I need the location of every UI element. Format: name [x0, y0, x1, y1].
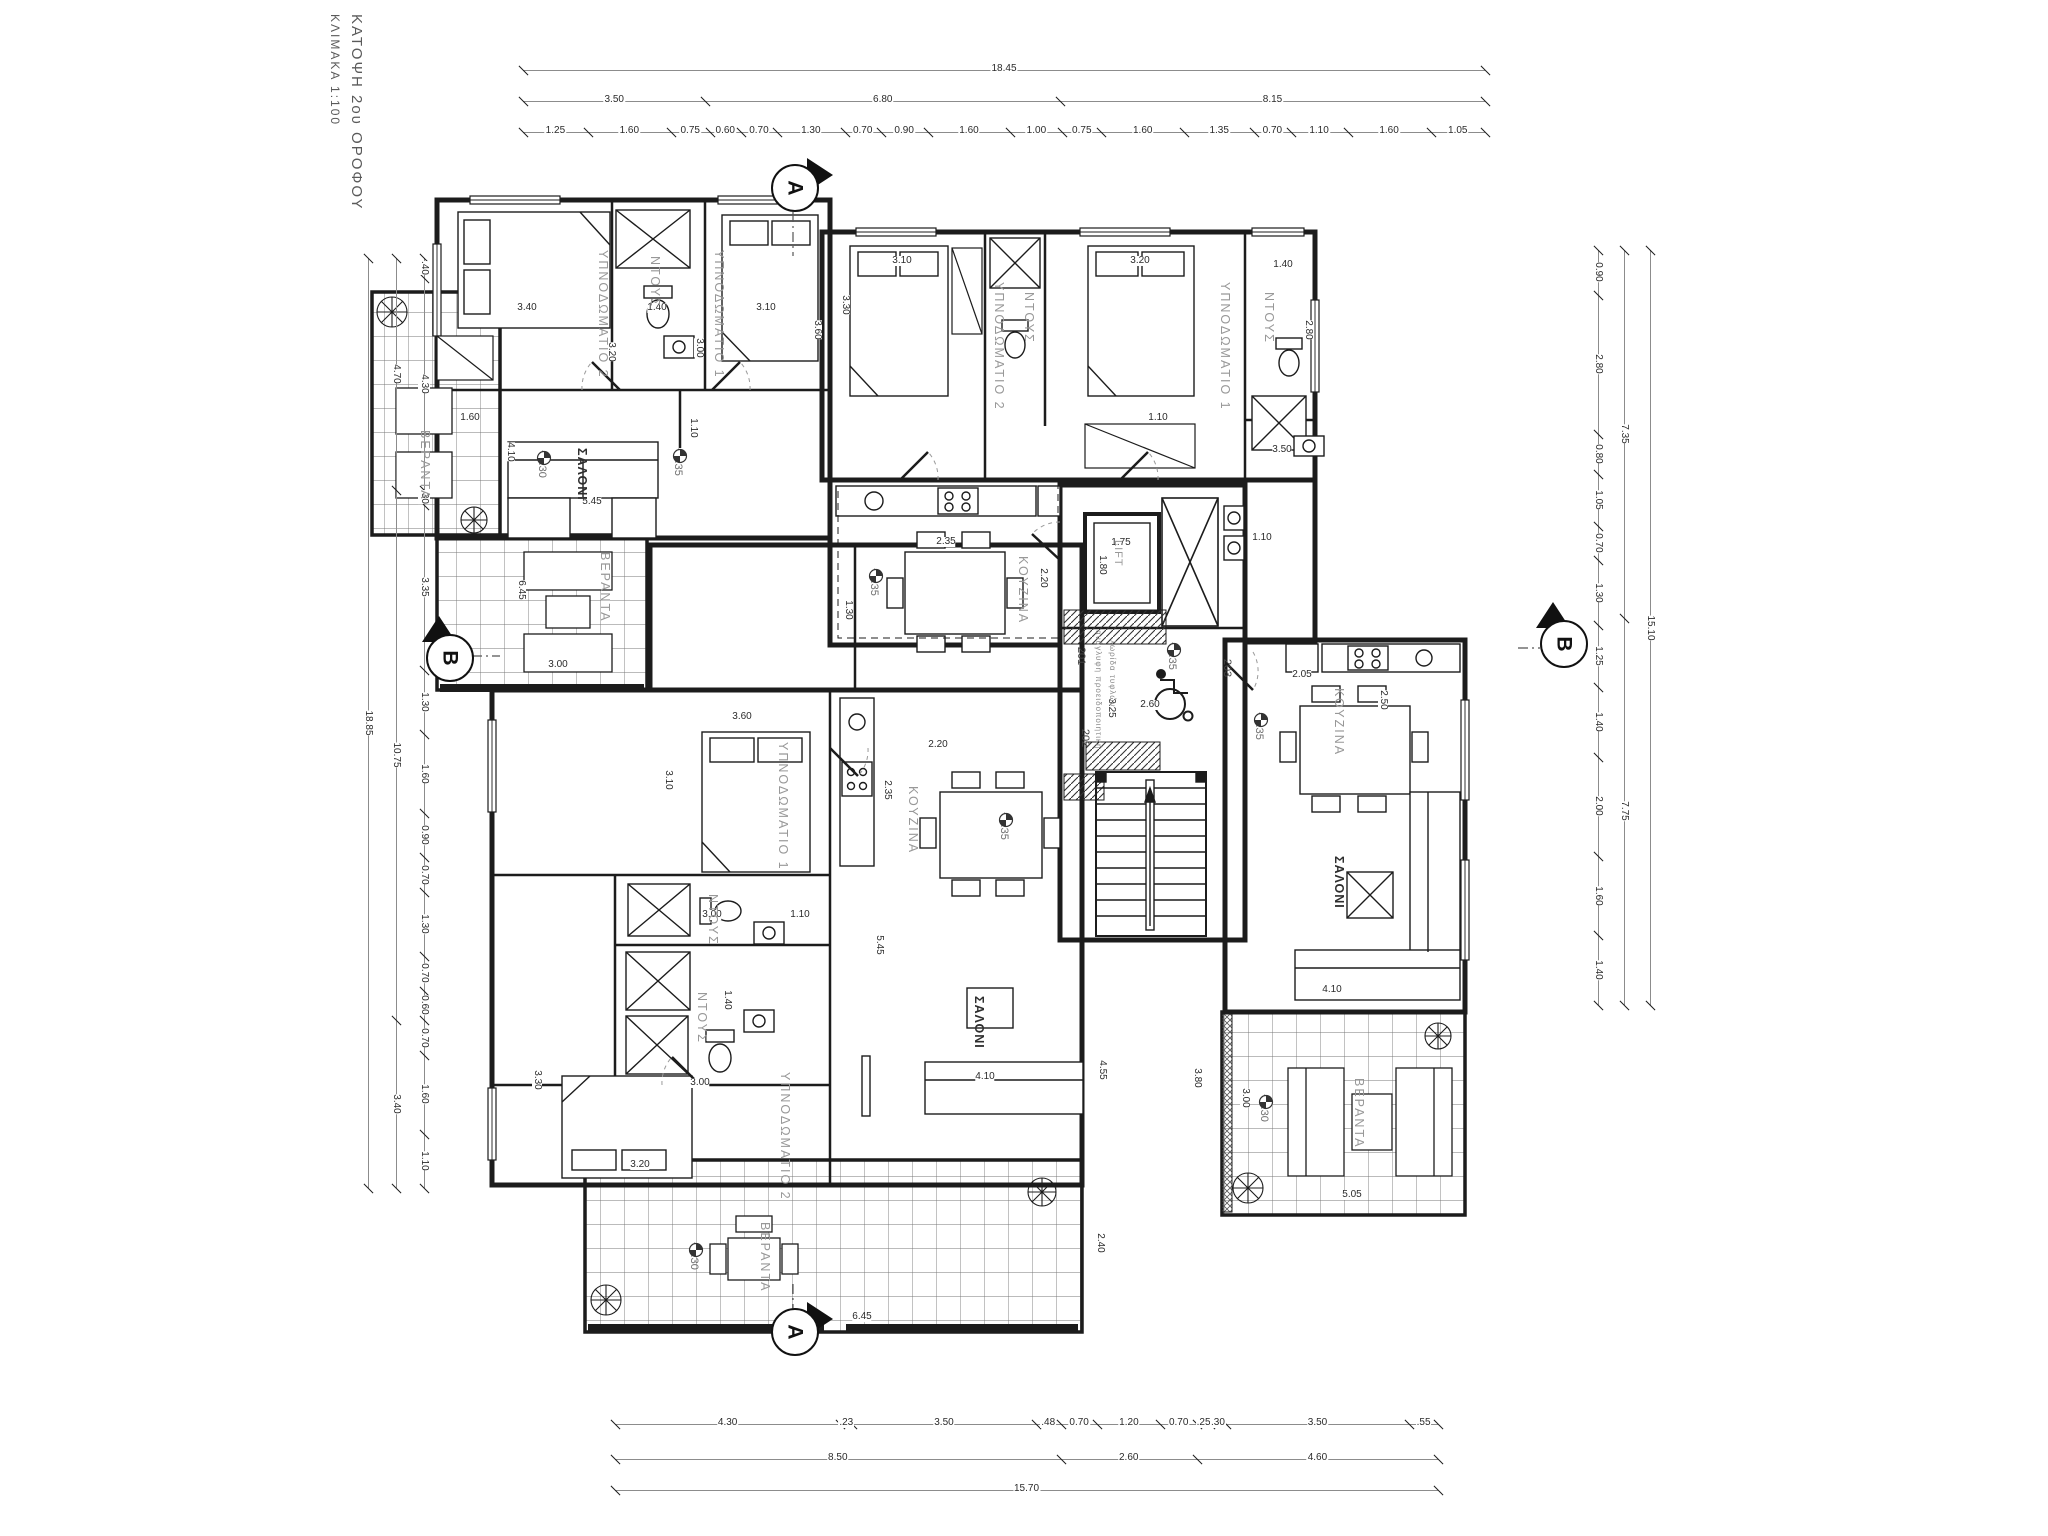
interior-dim: 3.50: [1272, 445, 1291, 455]
interior-dim: 6.45: [852, 1312, 871, 1322]
dim-value: 2.60: [1118, 1453, 1139, 1463]
dim-value: 2.00: [1592, 797, 1604, 816]
wheelchair-icon: [1155, 670, 1193, 721]
interior-dim: 2.20: [928, 740, 947, 750]
floor-plan-sheet: ΚΛΙΜΑΚΑ 1:100 ΚΑΤΟΨΗ 2ου ΟΡΟΦΟΥ 18.453.5…: [0, 0, 2048, 1536]
interior-dim: 3.80: [1192, 1068, 1202, 1087]
room-label: ΒΕΡΑΝΤΑ: [418, 430, 432, 501]
dim-value: 18.85: [362, 710, 374, 735]
kitchen-counter: [1286, 644, 1460, 672]
interior-dim: 5.05: [1342, 1190, 1361, 1200]
interior-dim: 4.10: [1322, 985, 1341, 995]
vent-shafts: [1224, 506, 1244, 560]
level-symbol: [998, 812, 1014, 828]
room-label: ΥΠΝΟΔΩΜΑΤΙΟ 2: [596, 250, 610, 379]
dim-value: 1.00: [1026, 126, 1047, 136]
tactile-strip-note: λωρίδα τυφλών: [1108, 640, 1117, 707]
dim-value: 10.75: [390, 743, 402, 768]
bed: [562, 1076, 692, 1178]
level-symbol: [1258, 1094, 1274, 1110]
drawing-title: ΚΑΤΟΨΗ 2ου ΟΡΟΦΟΥ: [348, 14, 365, 211]
dim-value: 8.15: [1262, 95, 1283, 105]
section-letter: A: [783, 180, 807, 195]
dim-value: 3.50: [933, 1418, 954, 1428]
interior-dim: 1.80: [1097, 555, 1107, 574]
section-marker-circle: A: [771, 1308, 819, 1356]
dim-value: .40: [418, 261, 430, 275]
room-label: ΥΠΝΟΔΩΜΑΤΙΟ 2: [778, 1072, 792, 1201]
shower: [628, 884, 690, 936]
apartment-number: 201: [1075, 647, 1087, 665]
toilet: [706, 1030, 734, 1072]
room-label: ΝΤΟΥΣ: [706, 894, 720, 946]
dim-value: 1.60: [619, 126, 640, 136]
dim-value: 0.70: [1168, 1418, 1189, 1428]
interior-dim: 2.20: [1038, 568, 1048, 587]
dim-value: 0.70: [1262, 126, 1283, 136]
room-label: ΥΠΝΟΔΩΜΑΤΙΟ 1: [776, 742, 790, 871]
dim-value: 1.35: [1208, 126, 1229, 136]
interior-dim: 2.35: [882, 780, 892, 799]
dim-value: 15.10: [1644, 615, 1656, 640]
dim-value: 4.60: [1307, 1453, 1328, 1463]
interior-dim: 1.40: [722, 990, 732, 1009]
interior-dim: 1.10: [1252, 533, 1271, 543]
interior-dim: 4.10: [505, 442, 515, 461]
room-label: ΝΤΟΥΣ: [1022, 292, 1036, 344]
dim-value: 3.50: [1307, 1418, 1328, 1428]
interior-dim: 2.60: [1140, 700, 1159, 710]
level-symbol: [672, 448, 688, 464]
sink: [664, 336, 694, 358]
bed: [850, 246, 948, 396]
interior-dim: 1.30: [843, 600, 853, 619]
interior-dim: 3.00: [548, 660, 567, 670]
dim-value: 0.80: [1592, 444, 1604, 463]
bed: [722, 215, 818, 361]
dim-value: 1.25: [545, 126, 566, 136]
dim-value: 0.70: [1068, 1418, 1089, 1428]
room-label: ΝΤΟΥΣ: [695, 992, 709, 1044]
dim-value: 0.75: [680, 126, 701, 136]
sofa: [1295, 792, 1460, 1000]
dim-value: 0.90: [893, 126, 914, 136]
floor-plan-drawing: [0, 0, 2048, 1536]
dim-chain-left-detail: [424, 258, 425, 1188]
interior-dim: 3.20: [1130, 256, 1149, 266]
dim-value: 1.05: [1592, 490, 1604, 509]
dim-value: 0.70: [1592, 533, 1604, 552]
dim-chain-top-mid: [523, 101, 1485, 102]
drawing-scale: ΚΛΙΜΑΚΑ 1:100: [328, 14, 342, 211]
room-label: ΥΠΝΟΔΩΜΑΤΙΟ 1: [712, 250, 726, 379]
room-label: ΣΑΛΟΝΙ: [972, 996, 986, 1049]
lift-label: LIFT: [1112, 540, 1124, 567]
dining-table: [920, 772, 1060, 896]
interior-dim: 5.45: [874, 935, 884, 954]
interior-dim: 3.20: [630, 1160, 649, 1170]
level-marker: +6.30: [1258, 1094, 1270, 1122]
stairs: [1096, 772, 1206, 936]
dim-value: 0.70: [748, 126, 769, 136]
core: [1064, 498, 1244, 936]
interior-dim: 2.40: [1095, 1233, 1105, 1252]
dim-value: .48: [1040, 1418, 1056, 1428]
section-letter: A: [783, 1324, 807, 1339]
interior-dim: 3.10: [892, 256, 911, 266]
level-symbol: [1253, 712, 1269, 728]
dim-value: 1.30: [418, 914, 430, 933]
dim-value: 1.60: [418, 1085, 430, 1104]
dim-value: 3.50: [604, 95, 625, 105]
interior-dim: 4.55: [1097, 1060, 1107, 1079]
tactile-strip-note: ανάγλυφη προειδοποιητική: [1094, 630, 1103, 749]
interior-dim: 3.60: [732, 712, 751, 722]
section-marker-A: A: [771, 164, 815, 208]
level-marker: +6.35: [868, 568, 880, 596]
interior-dim: 6.45: [516, 580, 526, 599]
apartment-number: 203: [1221, 659, 1233, 677]
level-marker: +6.30: [536, 450, 548, 478]
interior-dim: 3.00: [690, 1078, 709, 1088]
dim-value: 0.90: [1592, 263, 1604, 282]
dim-value: 3.40: [390, 1094, 402, 1113]
level-symbol: [536, 450, 552, 466]
dim-value: 4.70: [390, 364, 402, 383]
apartment-number: 202: [1079, 729, 1091, 747]
dining-table: [1280, 686, 1428, 812]
interior-dim: 1.60: [460, 413, 479, 423]
dim-value: .23: [838, 1418, 854, 1428]
section-marker-circle: A: [771, 164, 819, 212]
room-label: ΣΑΛΟΝΙ: [575, 448, 589, 501]
interior-dim: 2.35: [936, 537, 955, 547]
dim-value: 1.10: [1308, 126, 1329, 136]
room-label: ΒΕΡΑΝΤΑ: [598, 552, 612, 623]
interior-dim: 3.40: [517, 303, 536, 313]
section-marker-B: B: [426, 634, 470, 678]
dim-value: 0.90: [418, 826, 430, 845]
dim-value: .55: [1416, 1418, 1432, 1428]
kitchen-counter: [840, 698, 874, 866]
sink: [1294, 436, 1324, 456]
dim-value: 1.30: [800, 126, 821, 136]
toilet: [1276, 338, 1302, 376]
interior-dim: 3.30: [840, 295, 850, 314]
dim-value: 4.30: [418, 374, 430, 393]
shower: [990, 238, 1040, 288]
dim-chain-top-detail: [523, 132, 1485, 133]
room-label: ΚΟΥΖΙΝΑ: [1016, 556, 1030, 624]
interior-dim: 3.10: [663, 770, 673, 789]
dim-chain-left-mid: [396, 258, 397, 1188]
sink: [744, 1010, 774, 1032]
dim-chain-right-mid: [1624, 250, 1625, 1005]
section-marker-circle: B: [1540, 620, 1588, 668]
section-marker-B: B: [1540, 620, 1584, 664]
light-well: [1162, 498, 1218, 626]
dim-value: 18.45: [990, 64, 1017, 74]
dim-value: 0.75: [1071, 126, 1092, 136]
shower: [626, 952, 690, 1010]
room-label: ΒΕΡΑΝΤΑ: [758, 1222, 772, 1293]
interior-dim: 1.40: [1273, 260, 1292, 270]
dining-table: [887, 532, 1023, 652]
dim-value: 8.50: [827, 1453, 848, 1463]
interior-dim: 3.30: [532, 1070, 542, 1089]
room-label: ΚΟΥΖΙΝΑ: [1332, 688, 1346, 756]
room-label: ΝΤΟΥΣ: [648, 256, 662, 308]
dim-value: 1.05: [1447, 126, 1468, 136]
sink: [754, 922, 784, 944]
room-label: ΥΠΝΟΔΩΜΑΤΙΟ 1: [1218, 282, 1232, 411]
dim-value: 1.10: [418, 1151, 430, 1170]
room-label: ΝΤΟΥΣ: [1262, 292, 1276, 344]
interior-dim: 1.10: [1148, 413, 1167, 423]
section-marker-circle: B: [426, 634, 474, 682]
interior-dim: 3.00: [1240, 1088, 1250, 1107]
interior-dim: 2.80: [1303, 320, 1313, 339]
dim-value: 1.60: [958, 126, 979, 136]
dim-value: 4.30: [717, 1418, 738, 1428]
interior-dim: 3.60: [812, 320, 822, 339]
level-symbol: [1166, 642, 1182, 658]
bed: [1088, 246, 1194, 396]
dim-value: 0.60: [418, 996, 430, 1015]
dim-value: 1.60: [418, 764, 430, 783]
interior-dim: 4.10: [975, 1072, 994, 1082]
dim-value: .30: [1210, 1418, 1226, 1428]
level-marker: +6.35: [672, 448, 684, 476]
section-letter: B: [438, 650, 462, 665]
dim-value: 1.30: [418, 692, 430, 711]
interior-dim: 1.10: [790, 910, 809, 920]
room-label: ΒΕΡΑΝΤΑ: [1352, 1078, 1366, 1149]
interior-dim: 2.05: [1292, 670, 1311, 680]
dim-value: 1.60: [1132, 126, 1153, 136]
interior-dim: 2.50: [1378, 690, 1388, 709]
interior-dim: 3.10: [756, 303, 775, 313]
room-label: ΣΑΛΟΝΙ: [1332, 856, 1346, 909]
level-marker: +6.30: [688, 1242, 700, 1270]
dim-value: 1.40: [1592, 712, 1604, 731]
dim-value: 0.70: [852, 126, 873, 136]
level-symbol: [688, 1242, 704, 1258]
dim-value: 0.60: [715, 126, 736, 136]
dim-value: 1.20: [1118, 1418, 1139, 1428]
dim-value: 15.70: [1013, 1484, 1040, 1494]
dim-value: 1.60: [1378, 126, 1399, 136]
dim-value: 0.70: [418, 1028, 430, 1047]
dim-value: 6.80: [872, 95, 893, 105]
title-block: ΚΛΙΜΑΚΑ 1:100 ΚΑΤΟΨΗ 2ου ΟΡΟΦΟΥ: [328, 14, 365, 211]
dim-value: 3.35: [418, 578, 430, 597]
interior-dim: 1.10: [688, 418, 698, 437]
section-letter: B: [1552, 636, 1576, 651]
dim-value: 1.40: [1592, 960, 1604, 979]
dim-value: 1.25: [1592, 646, 1604, 665]
section-marker-A: A: [771, 1308, 815, 1352]
dim-value: 0.70: [418, 964, 430, 983]
dim-value: 0.70: [418, 865, 430, 884]
room-label: ΚΟΥΖΙΝΑ: [906, 786, 920, 854]
interior-dim: 3.00: [694, 338, 704, 357]
dim-value: 1.30: [1592, 583, 1604, 602]
level-marker: +6.35: [1166, 642, 1178, 670]
dim-value: 7.35: [1618, 424, 1630, 443]
dim-value: 2.80: [1592, 355, 1604, 374]
room-label: ΥΠΝΟΔΩΜΑΤΙΟ 2: [992, 282, 1006, 411]
level-symbol: [868, 568, 884, 584]
bed: [702, 732, 810, 872]
level-marker: +6.35: [998, 812, 1010, 840]
level-marker: +6.35: [1253, 712, 1265, 740]
dim-value: 1.60: [1592, 886, 1604, 905]
dim-value: 7.75: [1618, 802, 1630, 821]
